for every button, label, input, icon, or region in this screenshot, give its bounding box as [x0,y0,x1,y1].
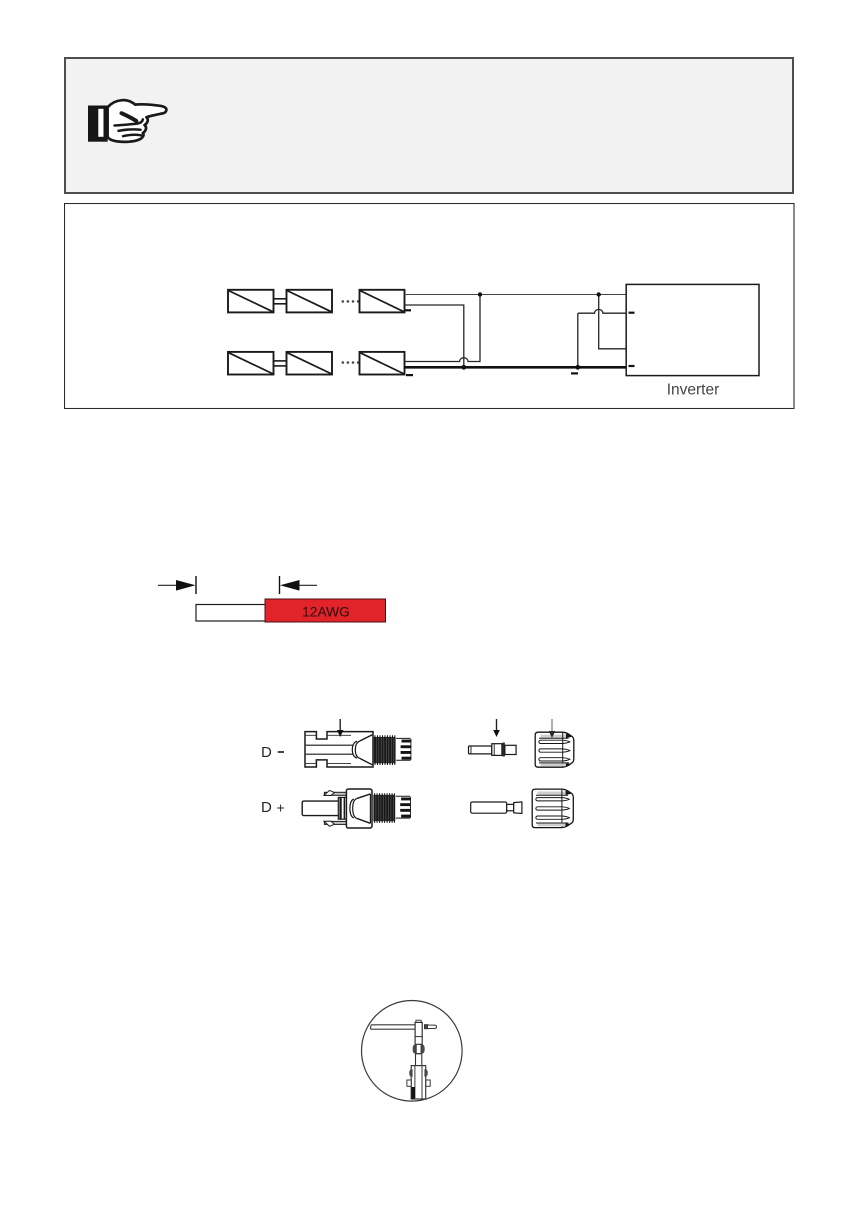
svg-text:D: D [261,744,272,761]
svg-text:+: + [277,800,285,816]
svg-text:D: D [261,799,272,816]
svg-text:12AWG: 12AWG [302,605,350,620]
svg-text:Inverter: Inverter [667,382,720,399]
